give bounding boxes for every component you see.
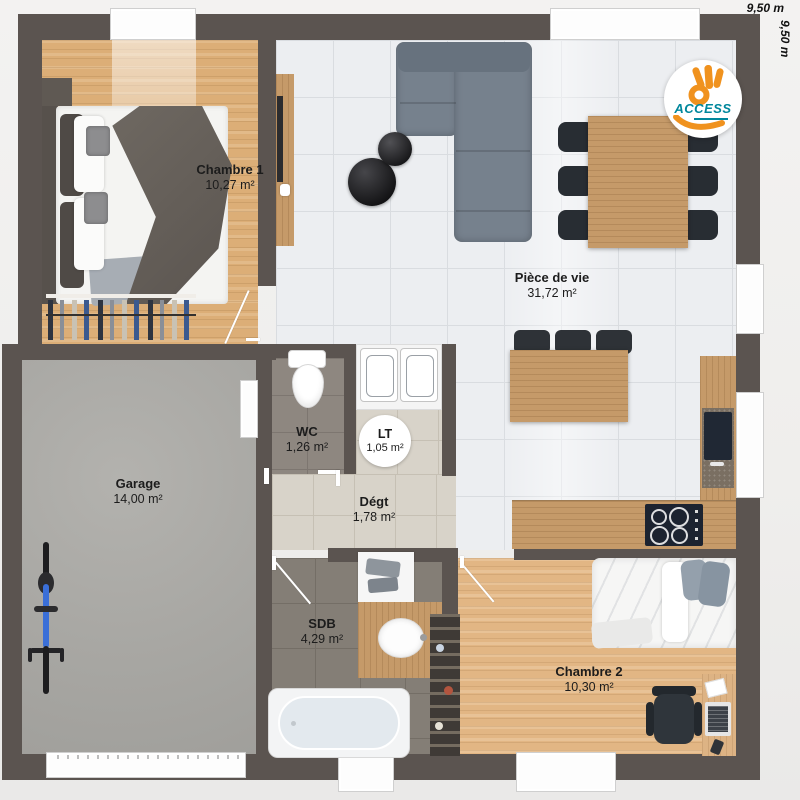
bedroom2-window: [516, 752, 616, 792]
sofa-body: [454, 42, 532, 242]
wall-lt-east: [442, 344, 456, 476]
wardrobe-clothes: [48, 300, 194, 340]
towel-2: [367, 577, 398, 594]
cooktop-burner-2: [669, 507, 689, 527]
bicycle-handlebar-left-grip: [28, 648, 32, 662]
bathroom-door-jamb: [272, 556, 276, 570]
room-name-chambre-2: Chambre 2: [555, 664, 622, 680]
wall-left-lower: [2, 344, 22, 780]
dimension-top: 9,50 m: [700, 1, 784, 15]
wc-door-jamb-right2: [336, 470, 340, 486]
washing-machine-2: [400, 348, 438, 402]
room-name-degt: Dégt: [353, 494, 395, 510]
room-name-wc: WC: [286, 424, 328, 440]
sofa-seam-2: [456, 210, 530, 212]
right-window-upper: [736, 264, 764, 334]
wall-wc-lt-divider: [344, 344, 356, 474]
cooktop-burner-1: [651, 509, 667, 525]
wall-left-upper: [18, 14, 42, 360]
cooktop-burner-4: [671, 527, 688, 544]
living-room-window: [550, 8, 700, 40]
bathroom-sink: [378, 618, 424, 658]
desk-laptop: [705, 702, 731, 736]
wardrobe-rail: [46, 314, 196, 316]
garage-side-door: [240, 380, 258, 438]
garage-door: [46, 752, 246, 778]
access-swoosh-icon: [672, 115, 734, 131]
coffee-table-large: [348, 158, 396, 206]
bathroom-faucet: [420, 634, 427, 641]
wall-bedroom1-south: [2, 344, 276, 360]
coffee-table-small: [378, 132, 412, 166]
wall-south-a: [256, 548, 270, 562]
bedroom1-nightstand: [42, 78, 72, 106]
room-name-piece-de-vie: Pièce de vie: [515, 270, 589, 286]
bicycle-front-wheel: [43, 646, 49, 694]
room-area-sdb: 4,29 m²: [301, 632, 343, 647]
room-area-garage: 14,00 m²: [113, 492, 162, 507]
room-label-wc: WC 1,26 m²: [286, 424, 328, 455]
bathtub-basin: [278, 696, 400, 750]
sofa-back: [398, 42, 530, 72]
shoe-accent-3: [435, 722, 443, 730]
bedroom1-wardrobe: [46, 294, 196, 344]
access-hand-icon: [673, 65, 735, 105]
washing-machine-1: [360, 348, 398, 402]
dimension-side: 9,50 m: [778, 20, 792, 90]
kitchen-island: [510, 350, 628, 422]
sofa-seam-3: [400, 102, 456, 104]
bathroom-window: [338, 752, 394, 792]
bedroom2-door-jamb: [460, 556, 464, 568]
access-logo-text: ACCESS: [664, 101, 742, 116]
room-area-wc: 1,26 m²: [286, 440, 328, 455]
shoe-accent-2: [444, 686, 453, 695]
wardrobe-shelf: [46, 294, 196, 298]
bedroom1-window: [110, 8, 196, 40]
bicycle-handlebar-right-grip: [60, 648, 64, 662]
shoe-closet: [430, 614, 460, 756]
washing-machine-2-lid: [406, 355, 434, 397]
access-logo: ACCESS: [664, 60, 742, 138]
room-name-chambre-1: Chambre 1: [196, 162, 263, 178]
bed1-cushion-top: [86, 126, 110, 156]
room-label-garage: Garage 14,00 m²: [113, 476, 162, 507]
bathtub: [268, 688, 410, 758]
bicycle: [28, 542, 64, 694]
desk: [702, 674, 736, 756]
room-label-sdb: SDB 4,29 m²: [301, 616, 343, 647]
right-window-lower: [736, 392, 764, 498]
room-label-piece-de-vie: Pièce de vie 31,72 m²: [515, 270, 589, 301]
desk-chair-arm-left: [646, 702, 654, 736]
desk-chair: [650, 690, 698, 748]
room-label-chambre-2: Chambre 2 10,30 m²: [555, 664, 622, 695]
shoe-accent-1: [436, 644, 444, 652]
cooktop-controls: [695, 510, 698, 540]
room-area-piece-de-vie: 31,72 m²: [515, 286, 589, 301]
desk-chair-seat: [654, 694, 694, 744]
sofa: [396, 42, 532, 242]
sideboard-tv: [277, 96, 283, 182]
bedroom1-door-stop: [246, 338, 260, 341]
wc-door-jamb-left: [264, 468, 269, 484]
room-area-chambre-2: 10,30 m²: [555, 680, 622, 695]
room-label-chambre-1: Chambre 1 10,27 m²: [196, 162, 263, 193]
bicycle-pedals: [34, 606, 58, 612]
desk-laptop-keys: [708, 706, 728, 732]
bicycle-frame: [43, 584, 49, 648]
sideboard-vase: [280, 184, 290, 196]
washing-machine-1-lid: [366, 355, 394, 397]
room-area-degt: 1,78 m²: [353, 510, 395, 525]
desk-phone: [710, 739, 725, 756]
room-area-chambre-1: 10,27 m²: [196, 178, 263, 193]
sofa-seam-1: [456, 150, 530, 152]
room-name-garage: Garage: [113, 476, 162, 492]
room-name-sdb: SDB: [301, 616, 343, 632]
desk-chair-arm-right: [694, 702, 702, 736]
room-area-lt: 1,05 m²: [366, 442, 403, 455]
desk-paper: [704, 678, 727, 698]
room-badge-lt: LT 1,05 m²: [359, 415, 411, 467]
floor-plan: Chambre 1 10,27 m² Pièce de vie 31,72 m²…: [0, 0, 800, 800]
room-label-degt: Dégt 1,78 m²: [353, 494, 395, 525]
dining-table: [588, 116, 688, 248]
bed1-cushion-bottom: [84, 192, 108, 224]
kitchen-faucet: [710, 462, 724, 466]
bathtub-drain: [291, 721, 296, 726]
cooktop: [645, 504, 703, 546]
room-name-lt: LT: [378, 427, 392, 441]
cooktop-burner-3: [650, 526, 669, 545]
kitchen-sink: [704, 412, 732, 460]
